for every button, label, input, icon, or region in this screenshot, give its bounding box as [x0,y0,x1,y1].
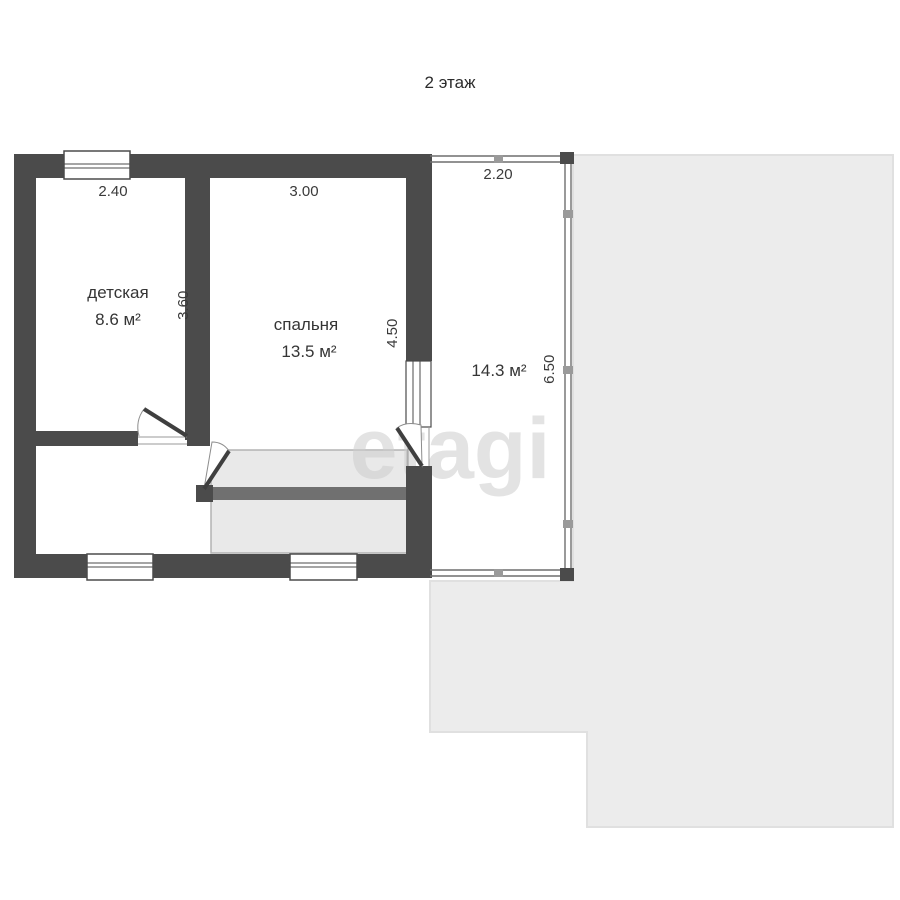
floor-plan-page: etagi [0,0,900,900]
dim-bedroom-height: 4.50 [385,309,402,357]
dim-childroom-height: 3.60 [176,281,193,329]
stair-band [198,487,407,500]
wall-right-upper [406,154,432,361]
dim-balcony-height: 6.50 [542,345,559,393]
wall-childroom-bottom [36,431,138,446]
wall-tick [494,155,503,163]
window-bedroom-to-balcony [406,361,431,427]
floor-plan-drawing: etagi [0,0,900,900]
balcony-post-bottom-right [560,568,574,581]
wall-tick [563,366,573,374]
wall-tick [563,520,573,528]
dim-bedroom-width: 3.00 [274,184,334,201]
wall-tick [563,210,573,218]
window-bottom-middle [290,554,357,580]
wall-tick [494,569,503,577]
door-swing-arc [138,409,144,436]
room-area-childroom: 8.6 м² [68,311,168,330]
wall-left [14,154,36,578]
room-name-bedroom: спальня [246,316,366,335]
page-title: 2 этаж [400,74,500,93]
dim-childroom-width: 2.40 [83,184,143,201]
watermark: etagi [350,401,551,497]
door-childroom [138,409,187,436]
balcony-post-top-right [560,152,574,164]
window-top [64,151,130,179]
door-leaf [144,409,187,436]
window-bottom-left [87,554,153,580]
wall-junction-stub [187,425,210,446]
wall-right-lower [406,466,432,578]
dim-balcony-width: 2.20 [468,167,528,184]
wall-bottom [14,554,430,578]
room-area-bedroom: 13.5 м² [249,343,369,362]
room-name-childroom: детская [68,284,168,303]
room-area-balcony: 14.3 м² [449,362,549,381]
